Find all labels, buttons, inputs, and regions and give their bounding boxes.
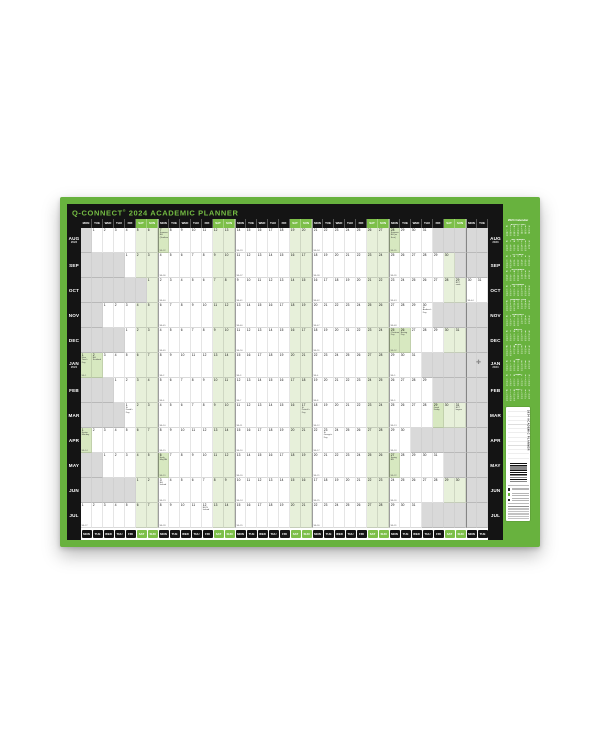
day-number: 18 — [314, 404, 322, 407]
day-header-sun: SUN — [147, 219, 158, 228]
day-cell: 11 — [191, 503, 202, 528]
day-number: 19 — [280, 354, 289, 357]
day-cell: 8 — [202, 403, 213, 428]
day-number: 8 — [181, 304, 190, 307]
month-name: MAY — [490, 463, 500, 468]
day-number: 29 — [391, 504, 399, 507]
day-cell: 13 — [257, 403, 268, 428]
day-cell: 11 — [191, 428, 202, 453]
empty-cell — [81, 478, 92, 503]
day-header-wed: WED — [411, 219, 422, 228]
day-footer-strip: MONTUEWEDTHUFRISATSUNMONTUEWEDTHUFRISATS… — [67, 528, 503, 540]
day-cell: 23 — [356, 378, 367, 403]
day-header-sun: SUN — [302, 530, 312, 538]
day-number: 19 — [291, 229, 300, 232]
month-label-left: JAN2024 — [67, 353, 81, 378]
day-cell: 21 — [345, 253, 356, 278]
day-cell: 14 — [268, 403, 279, 428]
empty-cell — [477, 328, 488, 353]
day-number: 18 — [269, 504, 278, 507]
day-cell: 17 — [301, 328, 312, 353]
day-number: 16 — [269, 304, 278, 307]
day-cell: 12 — [202, 353, 213, 378]
empty-cell — [422, 428, 433, 453]
month-label-right: APR — [488, 428, 503, 453]
day-number: 15 — [280, 404, 289, 407]
empty-cell — [455, 378, 466, 403]
mini-day: 30 — [509, 356, 513, 358]
day-number: 22 — [379, 279, 388, 282]
month-name: JUL — [69, 513, 78, 518]
day-cell: 4 — [169, 478, 180, 503]
day-number: 9 — [192, 454, 201, 457]
mini-calendar-grid: MTWTFSS123456789101112131415161718192021… — [505, 376, 531, 388]
day-cell: 16 — [246, 353, 257, 378]
day-number: 17 — [324, 279, 333, 282]
month-label-right: MAR — [488, 403, 503, 428]
day-number: 24 — [379, 404, 388, 407]
day-number: 7 — [170, 454, 179, 457]
day-cell: 15Wk 3 — [235, 353, 246, 378]
day-cell: 25 — [367, 453, 378, 478]
day-number: 2 — [104, 229, 113, 232]
day-number: 9 — [214, 329, 223, 332]
day-cell: 16 — [268, 303, 279, 328]
barcode — [510, 463, 527, 483]
day-number: 15 — [258, 304, 267, 307]
day-number: 5 — [181, 479, 190, 482]
day-number: 8 — [181, 454, 190, 457]
day-number: 4 — [181, 279, 190, 282]
day-header-wed: WED — [335, 530, 345, 538]
day-number: 29 — [445, 479, 454, 482]
day-cell: 1St David's Day — [125, 403, 136, 428]
day-cell: 23 — [367, 403, 378, 428]
empty-cell — [466, 453, 477, 478]
mini-calendar: MAYMTWTFSS123456789101112131415161718192… — [505, 359, 531, 374]
day-cell: 21 — [367, 278, 378, 303]
day-cell: 15 — [279, 403, 290, 428]
week-number: Wk 44 — [468, 300, 474, 302]
day-number: 8 — [160, 429, 168, 432]
day-cell: 10 — [180, 503, 191, 528]
day-cell: 29BST ends — [455, 278, 466, 303]
day-cell: 10 — [246, 278, 257, 303]
day-number: 13 — [237, 454, 245, 457]
day-cell: 14 — [224, 353, 235, 378]
empty-cell — [466, 478, 477, 503]
day-cell: 4 — [114, 353, 125, 378]
empty-cell — [466, 328, 477, 353]
month-label-left: SEP — [67, 253, 81, 278]
week-number: Wk 36 — [160, 275, 166, 277]
day-header-tue: TUE — [478, 530, 488, 538]
day-cell: 30 — [444, 328, 455, 353]
day-number: 23 — [346, 454, 355, 457]
day-cell: 25Wk 39 — [389, 253, 400, 278]
day-cell: 30 — [422, 453, 433, 478]
day-number: 16 — [291, 329, 300, 332]
day-header-tue: TUE — [477, 219, 488, 228]
day-cell: 11 — [246, 478, 257, 503]
day-cell: 8 — [202, 253, 213, 278]
month-label-left: MAY — [67, 453, 81, 478]
day-cell: 29Wk 5 — [389, 353, 400, 378]
day-cell: 29 — [411, 303, 422, 328]
day-header-mon: MON — [313, 530, 323, 538]
mini-calendar: OCTOBERMTWTFSS12345678910111213141516171… — [505, 254, 531, 269]
day-cell: 29 — [411, 453, 422, 478]
day-number: 12 — [269, 279, 278, 282]
day-number: 9 — [203, 379, 212, 382]
legend-item — [508, 498, 529, 501]
day-cell: 30 — [400, 353, 411, 378]
day-number: 4 — [115, 354, 124, 357]
day-cell: 5 — [125, 353, 136, 378]
day-number: 4 — [170, 479, 179, 482]
day-number: 23 — [357, 379, 366, 382]
day-cell: 29 — [400, 228, 411, 253]
day-number: 13 — [258, 404, 267, 407]
empty-cell — [103, 253, 114, 278]
empty-cell — [466, 503, 477, 528]
month-row-dec: DEC1234Wk 49567891011Wk 5012131415161718… — [67, 328, 503, 353]
day-number: 6 — [160, 304, 168, 307]
day-header-fri: FRI — [433, 219, 444, 228]
day-cell: 8Wk 28 — [158, 503, 169, 528]
week-number: Wk 21 — [314, 475, 320, 477]
day-cell: 10Wk 24 — [235, 478, 246, 503]
day-number: 4 — [115, 429, 124, 432]
day-cell: 10 — [213, 378, 224, 403]
empty-cell — [114, 328, 125, 353]
empty-cell — [103, 278, 114, 303]
empty-cell — [477, 253, 488, 278]
day-number: 14 — [247, 304, 256, 307]
day-cell: 20 — [323, 378, 334, 403]
day-header-sat: SAT — [137, 530, 147, 538]
day-number: 3 — [148, 329, 157, 332]
empty-cell — [114, 278, 125, 303]
mini-day: 31 — [527, 341, 531, 343]
mini-day: 26 — [527, 279, 531, 281]
day-cell: 18 — [323, 478, 334, 503]
day-header-wed: WED — [334, 219, 345, 228]
week-number: Wk 19 — [160, 475, 166, 477]
day-number: 7 — [148, 354, 157, 357]
day-number: 16 — [291, 404, 300, 407]
day-header-sat: SAT — [445, 530, 455, 538]
day-number: 23 — [368, 329, 377, 332]
day-number: 15 — [269, 379, 278, 382]
day-number: 24 — [357, 304, 366, 307]
day-cell: 14 — [246, 303, 257, 328]
day-header-fri: FRI — [434, 530, 444, 538]
day-number: 6 — [137, 429, 146, 432]
day-cell: 11 — [257, 278, 268, 303]
day-number: 5 — [137, 229, 146, 232]
mini-calendar: JULYMTWTFSS12345678910111213141516171819… — [505, 389, 531, 404]
week-number: Wk 1 — [82, 375, 87, 377]
month-label-right: NOV — [488, 303, 503, 328]
mini-calendar-grid: MTWTFSS123456789101112131415161718192021… — [505, 272, 531, 284]
day-number: 23 — [391, 279, 399, 282]
day-header-sun: SUN — [455, 219, 466, 228]
day-number: 24 — [368, 379, 377, 382]
day-number: 17 — [258, 429, 267, 432]
day-cell: 7 — [191, 253, 202, 278]
day-cell: 7 — [191, 403, 202, 428]
day-number: 10 — [203, 304, 212, 307]
day-number: 27 — [412, 254, 421, 257]
day-cell: 19 — [301, 453, 312, 478]
day-number: 19 — [335, 479, 344, 482]
day-cell: 25Christmas DayWk 52 — [389, 328, 400, 353]
day-cell: 30 — [444, 403, 455, 428]
day-number: 10 — [225, 254, 234, 257]
day-cell: 25 — [356, 228, 367, 253]
day-number: 30 — [401, 354, 410, 357]
day-number: 12 — [225, 454, 234, 457]
day-number: 28 — [445, 279, 454, 282]
mini-day: 25 — [527, 324, 531, 326]
day-cell: 23 — [323, 503, 334, 528]
day-number: 14 — [225, 504, 234, 507]
day-cell: 20 — [290, 353, 301, 378]
empty-cell — [455, 253, 466, 278]
day-cell: 4 — [180, 278, 191, 303]
day-cell: 9 — [224, 478, 235, 503]
holiday-note: BH N Ireland — [203, 507, 212, 512]
day-number: 1 — [104, 454, 113, 457]
day-cell: 27 — [433, 278, 444, 303]
empty-cell — [477, 228, 488, 253]
day-number: 31 — [478, 279, 487, 282]
day-number: 9 — [237, 279, 245, 282]
day-cell: 20 — [334, 403, 345, 428]
day-number: 30 — [412, 229, 421, 232]
day-number: 18 — [335, 279, 344, 282]
day-cell: 1 — [103, 303, 114, 328]
day-cell: 16 — [290, 253, 301, 278]
day-cell: 25 — [367, 303, 378, 328]
day-cell: 3 — [136, 378, 147, 403]
month-name: JUN — [69, 488, 79, 493]
day-cell: 6 — [169, 378, 180, 403]
month-label-right: AUG2023 — [488, 228, 503, 253]
empty-cell — [81, 253, 92, 278]
day-cell: 15 — [257, 453, 268, 478]
day-cell: 18Wk 12 — [312, 403, 323, 428]
day-cell: 2BH Scotland — [92, 353, 103, 378]
day-cell: 26 — [356, 503, 367, 528]
day-number: 3 — [115, 229, 124, 232]
mini-calendar: AUGUST 2023MTWTFSS1234567891011121314151… — [505, 224, 531, 239]
day-number: 20 — [335, 329, 344, 332]
day-cell: 26 — [356, 428, 367, 453]
day-header-fri: FRI — [203, 530, 213, 538]
day-number: 13 — [269, 479, 278, 482]
day-cell: 16 — [257, 228, 268, 253]
day-number: 17 — [269, 229, 278, 232]
day-cell: 3 — [103, 353, 114, 378]
month-name: MAR — [490, 413, 501, 418]
day-cell: 8 — [213, 478, 224, 503]
day-number: 14 — [269, 404, 278, 407]
day-cell: 25 — [378, 378, 389, 403]
day-cell: 18 — [279, 228, 290, 253]
registered-trademark-symbol: ® — [123, 209, 126, 213]
week-number: Wk 16 — [237, 450, 243, 452]
day-number: 12 — [258, 479, 267, 482]
day-number: 25 — [391, 254, 399, 257]
day-number: 25 — [357, 229, 366, 232]
day-cell: 4Wk 49 — [158, 328, 169, 353]
day-cell: 22 — [356, 403, 367, 428]
day-header-thu: THU — [191, 219, 202, 228]
week-number: Wk 25 — [314, 500, 320, 502]
day-cell: 17 — [257, 503, 268, 528]
day-number: 19 — [324, 329, 333, 332]
day-number: 6 — [181, 329, 190, 332]
day-cell: 28 — [378, 503, 389, 528]
day-number: 10 — [225, 329, 234, 332]
day-cell: 21 — [301, 503, 312, 528]
day-number: 17 — [291, 379, 300, 382]
day-cell: 21 — [323, 453, 334, 478]
day-number: 14 — [258, 379, 267, 382]
month-row-may: MAY123456Early May BHWk 1978910111213Wk … — [67, 453, 503, 478]
day-cell: 19 — [345, 278, 356, 303]
day-number: 17 — [314, 479, 322, 482]
day-number: 10 — [181, 354, 190, 357]
week-number: Wk 20 — [237, 475, 243, 477]
empty-cell — [114, 403, 125, 428]
day-cell: 8 — [180, 303, 191, 328]
day-number: 22 — [357, 404, 366, 407]
day-number: 13 — [247, 379, 256, 382]
empty-cell — [81, 303, 92, 328]
day-number: 26 — [423, 279, 432, 282]
day-number: 2 — [148, 479, 157, 482]
day-number: 14 — [269, 329, 278, 332]
empty-cell — [466, 228, 477, 253]
mini-day: 31 — [527, 296, 531, 298]
day-cell: 27 — [400, 378, 411, 403]
day-cell: 26 — [400, 403, 411, 428]
day-header-sun: SUN — [224, 219, 235, 228]
day-cell: 5 — [169, 253, 180, 278]
day-header-tue: TUE — [400, 219, 411, 228]
day-cell: 14 — [257, 378, 268, 403]
holiday-note: BH Scotland — [93, 357, 102, 362]
empty-cell — [433, 428, 444, 453]
month-name: APR — [69, 438, 79, 443]
week-number: Wk 4 — [314, 375, 319, 377]
month-row-sep: SEP1234Wk 36567891011Wk 3712131415161718… — [67, 253, 503, 278]
month-label-left: NOV — [67, 303, 81, 328]
day-number: 17 — [302, 329, 311, 332]
day-cell: 18 — [268, 503, 279, 528]
day-cell: 6 — [180, 403, 191, 428]
day-number: 11 — [203, 229, 212, 232]
day-cell: 4Wk 36 — [158, 253, 169, 278]
day-cell: 3 — [125, 303, 136, 328]
day-number: 28 — [379, 504, 388, 507]
day-cell: 7 — [191, 328, 202, 353]
day-number: 12 — [203, 354, 212, 357]
day-cell: 17 — [290, 378, 301, 403]
day-cell: 9 — [191, 453, 202, 478]
day-cell: 26Boxing Day — [400, 328, 411, 353]
mini-calendar-grid: MTWTFSS123456789101112131415161718192021… — [505, 287, 531, 299]
empty-cell — [477, 378, 488, 403]
day-cell: 19 — [279, 428, 290, 453]
mini-day: 29 — [516, 326, 520, 328]
day-cell: 31 — [433, 453, 444, 478]
day-cell: 11Wk 50 — [235, 328, 246, 353]
day-cell: 8 — [180, 453, 191, 478]
day-number: 27 — [434, 279, 443, 282]
empty-cell — [433, 353, 444, 378]
day-number: 5 — [170, 329, 179, 332]
day-cell: 19 — [290, 228, 301, 253]
mini-calendar: DECEMBERMTWTFSS1234567891011121314151617… — [505, 284, 531, 299]
product-photo-background: Q-CONNECT® 2024 ACADEMIC PLANNER MONTUEW… — [0, 0, 600, 744]
day-cell: 6Wk 45 — [158, 303, 169, 328]
day-cell: 24 — [334, 503, 345, 528]
holiday-note: St Andrew's Day — [423, 307, 432, 314]
day-number: 30 — [401, 429, 410, 432]
day-cell: 26 — [411, 478, 422, 503]
day-cell: 11 — [213, 303, 224, 328]
day-cell: 3 — [147, 403, 158, 428]
day-cell: 31 — [411, 353, 422, 378]
day-number: 10 — [225, 404, 234, 407]
day-cell: 24 — [334, 353, 345, 378]
day-cell: 21 — [334, 378, 345, 403]
day-number: 12 — [203, 429, 212, 432]
day-cell: 8Wk 15 — [158, 428, 169, 453]
week-number: Wk 28 — [160, 525, 166, 527]
day-cell: 4 — [125, 228, 136, 253]
planner-title-bar: Q-CONNECT® 2024 ACADEMIC PLANNER — [67, 204, 503, 219]
day-header-fri: FRI — [126, 530, 136, 538]
day-cell: 13 — [224, 228, 235, 253]
day-number: 26 — [379, 454, 388, 457]
day-number: 22 — [346, 379, 355, 382]
day-cell: 11Wk 37 — [235, 253, 246, 278]
holiday-note: BST begins — [456, 407, 465, 412]
day-number: 16 — [314, 279, 322, 282]
day-header-wed: WED — [104, 530, 114, 538]
day-number: 22 — [357, 254, 366, 257]
day-number: 14 — [225, 429, 234, 432]
day-header-mon: MON — [82, 530, 92, 538]
day-number: 11 — [237, 254, 245, 257]
day-number: 9 — [170, 504, 179, 507]
day-cell: 5 — [125, 428, 136, 453]
day-number: 18 — [324, 479, 333, 482]
day-number: 26 — [412, 479, 421, 482]
empty-cell — [81, 228, 92, 253]
day-cell: 4Wk 10 — [158, 403, 169, 428]
day-cell: 30 — [444, 253, 455, 278]
day-cell: 27 — [367, 428, 378, 453]
month-name: DEC — [490, 338, 500, 343]
mini-calendar: FEBRUARYMTWTFSS1234567891011121314151617… — [505, 314, 531, 329]
week-number: Wk 38 — [314, 275, 320, 277]
